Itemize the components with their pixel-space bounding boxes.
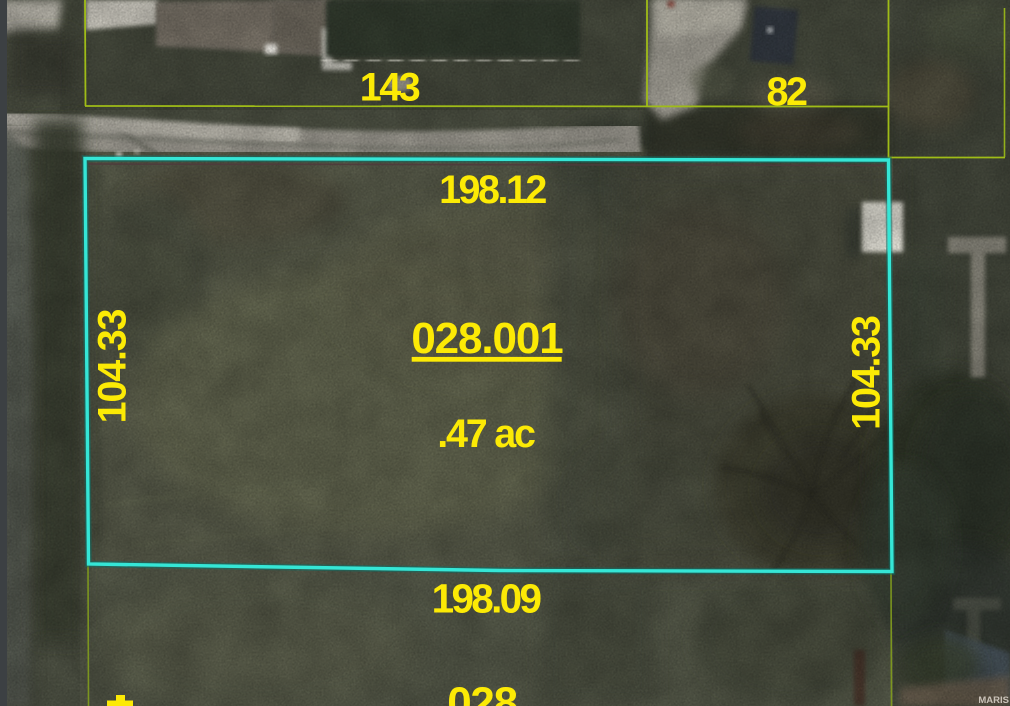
svg-text:028: 028 <box>447 679 517 706</box>
svg-text:104.33: 104.33 <box>845 316 889 430</box>
svg-text:198.12: 198.12 <box>439 168 546 212</box>
svg-text:82: 82 <box>767 70 807 114</box>
svg-text:198.09: 198.09 <box>432 576 542 622</box>
svg-text:.47 ac: .47 ac <box>437 412 535 456</box>
svg-text:143: 143 <box>360 66 420 110</box>
svg-text:028.001: 028.001 <box>411 314 563 363</box>
svg-text:104.33: 104.33 <box>91 309 135 423</box>
svg-text:MARIS: MARIS <box>978 695 1009 706</box>
